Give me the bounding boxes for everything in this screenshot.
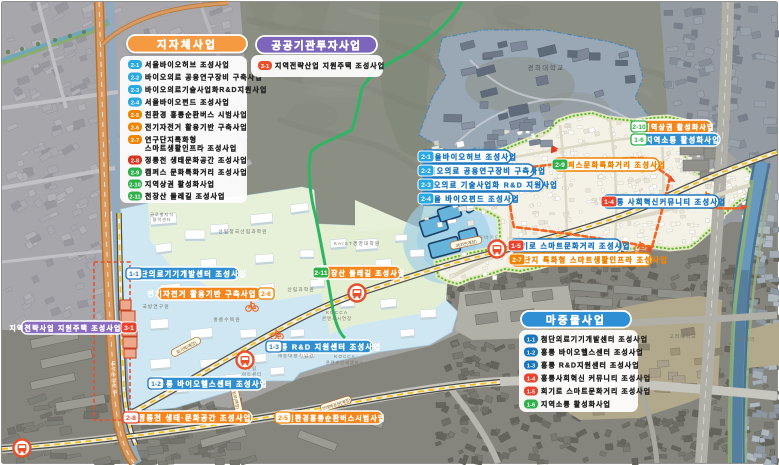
svg-text:홍릉 사회혁신커뮤니티 조성사업: 홍릉 사회혁신커뮤니티 조성사업 [609,197,726,206]
svg-text:2-2: 2-2 [421,168,431,175]
svg-text:친환경홍릉순환버스시범사업: 친환경홍릉순환버스시범사업 [287,413,385,422]
svg-text:2-7: 2-7 [131,138,139,144]
svg-text:바이오의료 기술사업화 R&D 지원사업: 바이오의료 기술사업화 R&D 지원사업 [418,180,558,189]
svg-text:바이오의료 공용연구장비 구축사업: 바이오의료 공용연구장비 구축사업 [421,166,546,175]
svg-text:고려대학교: 고려대학교 [669,333,696,340]
svg-text:2-3: 2-3 [131,88,140,94]
svg-text:서울바이오펀드 조성사업: 서울바이오펀드 조성사업 [145,98,230,107]
svg-text:2-9: 2-9 [555,162,565,169]
svg-text:천장산 둘레길 조성사업: 천장산 둘레길 조성사업 [324,268,406,277]
svg-text:바이오의료 공용연구장비 구축사업: 바이오의료 공용연구장비 구축사업 [145,73,263,82]
svg-text:2-5: 2-5 [131,113,140,119]
svg-text:지역상권 활성화사업: 지역상권 활성화사업 [643,122,714,131]
svg-text:2-6: 2-6 [261,291,271,298]
svg-text:산림청국산림과학원: 산림청국산림과학원 [218,228,267,235]
svg-text:스마트생활인프라 조성사업: 스마트생활인프라 조성사업 [145,144,237,153]
svg-text:1-5: 1-5 [511,243,521,250]
svg-text:정릉천 생태·문화공간 조성사업: 정릉천 생태·문화공간 조성사업 [138,413,251,422]
svg-text:콘텐츠인재캠퍼스: 콘텐츠인재캠퍼스 [326,359,364,366]
svg-text:2-3: 2-3 [421,182,431,189]
svg-text:3-1: 3-1 [124,325,134,332]
svg-text:2-10: 2-10 [632,124,646,131]
svg-text:2-4: 2-4 [131,100,140,106]
svg-text:2-2: 2-2 [131,75,139,81]
svg-text:지역전략사업 지원주택 조성사업: 지역전략사업 지원주택 조성사업 [9,323,121,332]
svg-text:홍릉 R&D지원센터 조성사업: 홍릉 R&D지원센터 조성사업 [541,361,640,370]
svg-text:2-1: 2-1 [421,154,431,161]
svg-text:1-1: 1-1 [527,337,536,343]
svg-text:1-2: 1-2 [527,350,535,356]
svg-text:홍릉수목원: 홍릉수목원 [213,316,240,323]
svg-text:전기자전거 활용기반 구축사업: 전기자전거 활용기반 구축사업 [147,289,256,298]
svg-text:홍릉 바이오헬스센터 조성사업: 홍릉 바이오헬스센터 조성사업 [158,379,267,388]
svg-text:경희대학교: 경희대학교 [527,63,564,72]
svg-text:연구단지 특화형 스마트생활인프라 조성사업: 연구단지 특화형 스마트생활인프라 조성사업 [508,255,668,264]
svg-text:정릉천 생태문화공간 조성사업: 정릉천 생태문화공간 조성사업 [145,156,248,165]
svg-text:첨단의료기기개발센터 조성사업: 첨단의료기기개발센터 조성사업 [541,335,648,344]
svg-text:고려대역: 고려대역 [735,336,755,343]
svg-text:서울바이오허브 조성사업: 서울바이오허브 조성사업 [145,60,230,69]
svg-text:1-1: 1-1 [129,271,139,278]
svg-text:전기자전거 활용기반 구축사업: 전기자전거 활용기반 구축사업 [145,123,248,132]
svg-text:2-10: 2-10 [129,182,141,188]
svg-text:1-4: 1-4 [604,199,614,206]
svg-text:홍릉 R&D 지원센터 조성사업: 홍릉 R&D 지원센터 조성사업 [273,342,382,351]
svg-text:콘텐츠시연장: 콘텐츠시연장 [322,315,352,321]
svg-text:3-1: 3-1 [261,64,270,70]
svg-text:KAIST경영대학원: KAIST경영대학원 [334,240,381,247]
svg-text:2-4: 2-4 [421,196,431,203]
svg-text:지자체사업: 지자체사업 [157,38,217,51]
svg-text:KOCCA: KOCCA [334,354,355,359]
svg-text:1-3: 1-3 [269,344,279,351]
svg-text:2-5: 2-5 [278,415,288,422]
svg-text:1-2: 1-2 [151,381,161,388]
svg-text:2-7: 2-7 [512,257,522,264]
svg-text:협력센터: 협력센터 [152,216,171,223]
svg-text:국방연구원: 국방연구원 [142,303,169,310]
svg-text:천장산 둘레길 조성사업: 천장산 둘레길 조성사업 [145,192,225,201]
svg-text:홍릉 바이오헬스센터 조성사업: 홍릉 바이오헬스센터 조성사업 [541,348,644,357]
svg-text:바이오의료기술사업화R&D지원사업: 바이오의료기술사업화R&D지원사업 [145,85,267,94]
svg-text:1-4: 1-4 [527,376,536,382]
svg-text:연구단지특화형: 연구단지특화형 [145,135,197,144]
svg-text:지역상권 활성화사업: 지역상권 활성화사업 [145,180,215,189]
svg-text:첨단의료기기개발센터 조성사업: 첨단의료기기개발센터 조성사업 [133,269,247,278]
svg-text:2-11: 2-11 [314,270,327,277]
svg-text:2-1: 2-1 [131,63,140,69]
svg-text:2-6: 2-6 [131,125,140,131]
svg-text:1-6: 1-6 [634,137,644,144]
svg-text:친환경 홍릉순환버스 시범사업: 친환경 홍릉순환버스 시범사업 [145,110,248,119]
svg-text:산림과학원: 산림과학원 [287,286,314,293]
svg-text:서울 바이오펀드 조성사업: 서울 바이오펀드 조성사업 [426,194,520,203]
svg-text:회기로 스마트문화거리 조성사업: 회기로 스마트문화거리 조성사업 [541,387,651,396]
svg-text:홍릉사회혁신 커뮤니티 조성사업: 홍릉사회혁신 커뮤니티 조성사업 [541,374,651,383]
svg-text:2-8: 2-8 [131,158,140,164]
svg-text:서울바이오허브 조성사업: 서울바이오허브 조성사업 [427,152,517,161]
svg-text:지역소통 활성화사업: 지역소통 활성화사업 [646,135,721,144]
svg-text:마중물사업: 마중물사업 [546,314,606,327]
svg-text:공공기관투자사업: 공공기관투자사업 [271,39,361,52]
svg-text:2-9: 2-9 [131,170,140,176]
svg-text:1-5: 1-5 [527,389,536,395]
svg-text:1-6: 1-6 [527,402,536,408]
svg-text:2-8: 2-8 [126,415,136,422]
svg-text:회기로 스마트문화거리 조성사업: 회기로 스마트문화거리 조성사업 [513,241,630,250]
svg-text:지역전략산업 지원주택 조성사업: 지역전략산업 지원주택 조성사업 [275,61,385,70]
svg-text:지역소통 활성화사업: 지역소통 활성화사업 [541,400,611,409]
svg-text:캠퍼스문화특화거리 조성사업: 캠퍼스문화특화거리 조성사업 [560,160,666,169]
svg-text:캠퍼스 문화특화거리 조성사업: 캠퍼스 문화특화거리 조성사업 [145,168,248,177]
svg-text:2-11: 2-11 [129,194,141,200]
svg-text:1-3: 1-3 [527,363,536,369]
